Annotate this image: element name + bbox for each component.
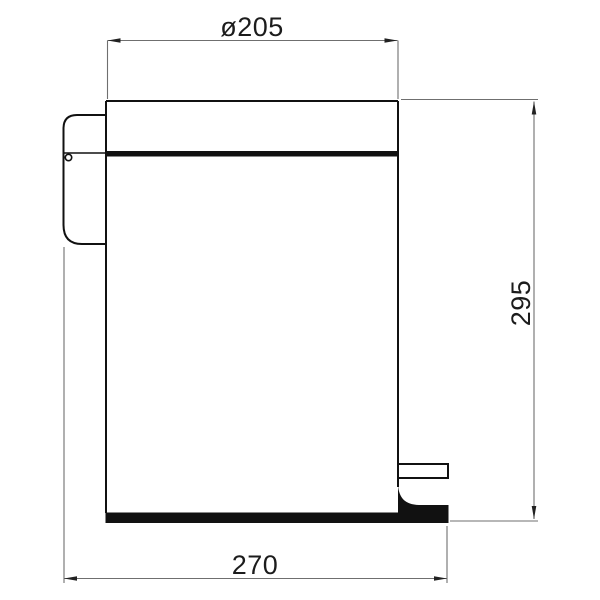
arrowhead-left-icon	[108, 38, 121, 43]
depth-label: 270	[232, 550, 279, 580]
height-label: 295	[506, 280, 536, 327]
pedal-mount	[398, 485, 449, 514]
pedal-bin-technical-drawing: ø205 295 270	[0, 0, 600, 600]
hinge-pin	[65, 154, 71, 160]
arrowhead-right-icon	[434, 576, 447, 581]
arrowhead-up-icon	[532, 102, 537, 115]
diameter-label: ø205	[220, 12, 284, 42]
arrowhead-right-icon	[385, 38, 398, 43]
pedal-plate	[398, 464, 448, 478]
bin-object	[64, 101, 449, 523]
dimension-height: 295	[401, 100, 538, 522]
lid-seam-band	[106, 151, 398, 157]
dimension-diameter: ø205	[108, 12, 399, 99]
arrowhead-left-icon	[64, 576, 77, 581]
drawing-canvas: ø205 295 270	[0, 0, 600, 600]
hinge-bracket	[64, 115, 107, 244]
dimension-depth: 270	[64, 247, 447, 583]
base-plate	[106, 513, 449, 524]
arrowhead-down-icon	[532, 506, 537, 519]
